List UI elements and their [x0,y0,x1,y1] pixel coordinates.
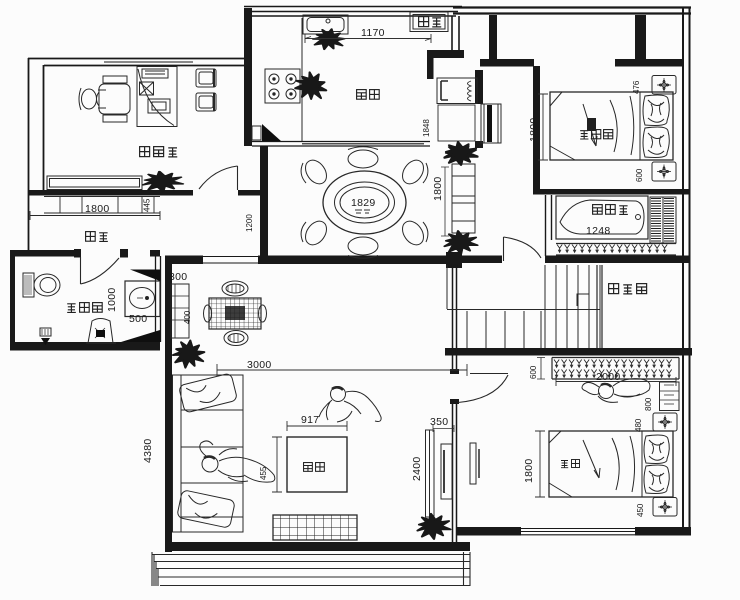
svg-text:1200: 1200 [245,214,254,232]
svg-text:445: 445 [143,198,152,212]
svg-text:1800: 1800 [432,176,444,201]
svg-text:4380: 4380 [142,438,154,463]
svg-text:455: 455 [259,466,268,480]
svg-text:500: 500 [129,313,147,325]
svg-text:3000: 3000 [247,359,272,371]
svg-text:300: 300 [169,271,187,283]
svg-text:600: 600 [529,365,538,379]
svg-text:1000: 1000 [106,287,118,312]
svg-text:1170: 1170 [361,27,385,39]
svg-text:800: 800 [644,397,653,411]
svg-text:1848: 1848 [422,119,431,137]
svg-text:1800: 1800 [85,203,110,215]
svg-text:1800: 1800 [523,458,535,483]
svg-text:2400: 2400 [411,456,423,481]
svg-text:450: 450 [636,503,645,517]
svg-text:2000: 2000 [596,371,621,383]
svg-text:1829: 1829 [351,197,376,209]
svg-text:476: 476 [632,80,641,94]
svg-text:400: 400 [183,310,192,324]
svg-text:600: 600 [635,168,644,182]
svg-text:1248: 1248 [586,225,611,237]
svg-text:917: 917 [301,414,319,426]
svg-text:480: 480 [634,418,643,432]
svg-text:1800: 1800 [528,117,540,142]
